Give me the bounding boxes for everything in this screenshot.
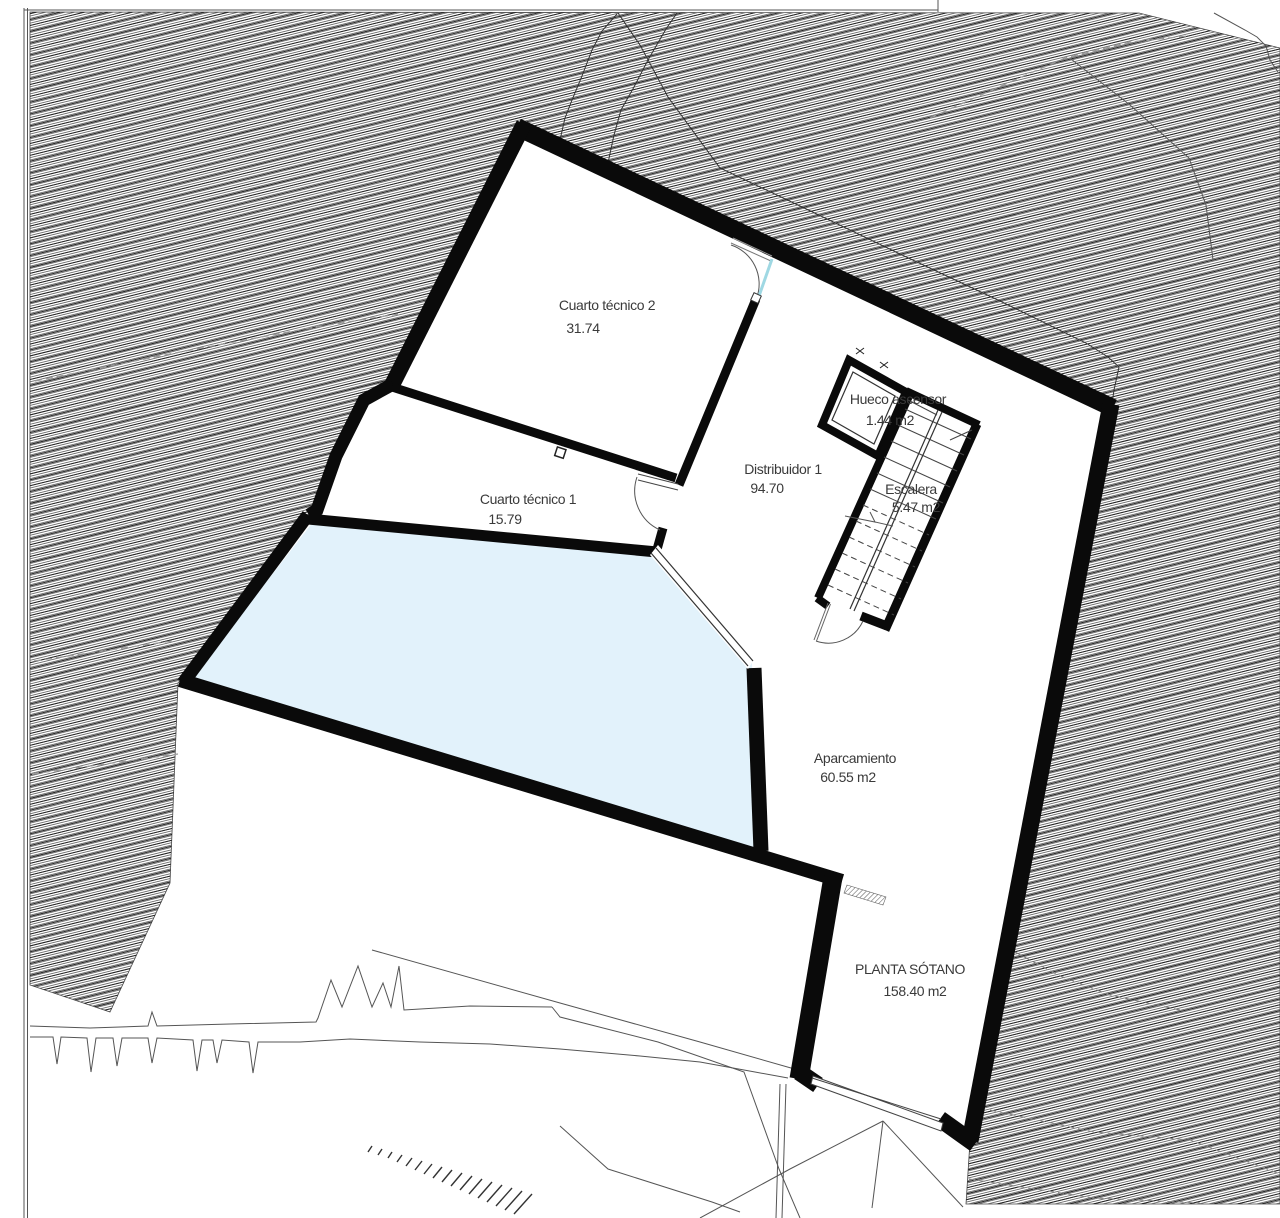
svg-text:31.74: 31.74 <box>566 320 600 336</box>
svg-text:Aparcamiento: Aparcamiento <box>814 750 897 766</box>
svg-text:Cuarto técnico 2: Cuarto técnico 2 <box>559 297 656 313</box>
svg-text:PLANTA SÓTANO: PLANTA SÓTANO <box>855 961 966 977</box>
svg-text:Escalera: Escalera <box>885 481 937 497</box>
svg-text:60.55 m2: 60.55 m2 <box>820 769 876 785</box>
svg-text:Hueco ascensor: Hueco ascensor <box>850 391 947 407</box>
svg-text:158.40 m2: 158.40 m2 <box>883 983 947 999</box>
svg-text:1.44 m2: 1.44 m2 <box>866 412 915 428</box>
svg-text:15.79: 15.79 <box>488 511 522 527</box>
svg-text:5.47 m2: 5.47 m2 <box>892 499 941 515</box>
svg-text:Cuarto técnico 1: Cuarto técnico 1 <box>480 491 577 507</box>
svg-text:94.70: 94.70 <box>750 480 784 496</box>
svg-text:Distribuidor 1: Distribuidor 1 <box>744 461 822 477</box>
